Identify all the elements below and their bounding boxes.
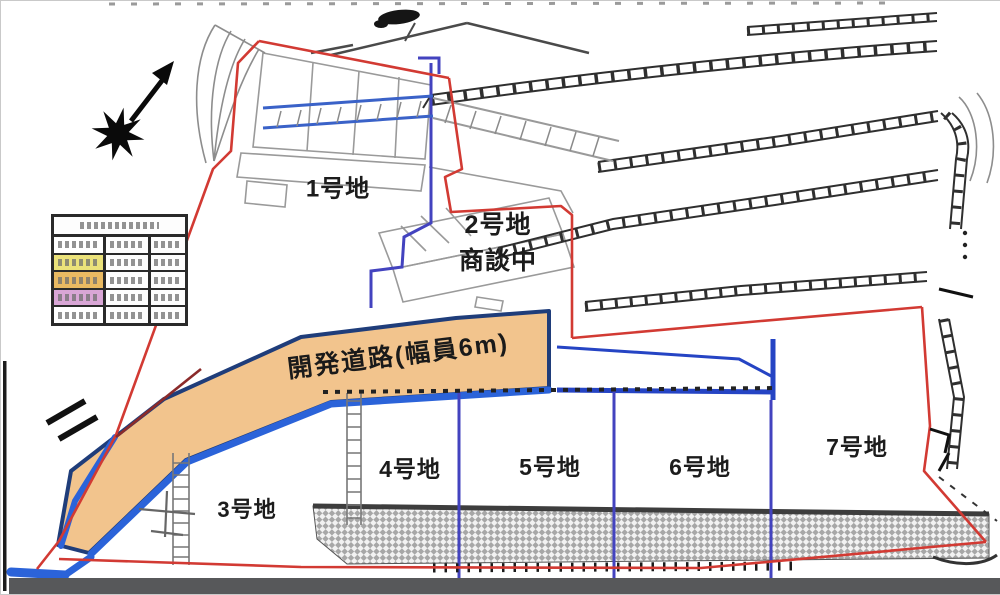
legend-cell bbox=[54, 272, 106, 288]
lot-2-status-label: 商談中 bbox=[459, 241, 537, 277]
legend-cell bbox=[151, 307, 185, 323]
lot-label-4: 4号地 bbox=[379, 450, 441, 484]
legend-cell bbox=[151, 272, 185, 288]
lot-label-1: 1号地 bbox=[306, 169, 370, 204]
lot-map: 1号地 2号地 商談中 3号地 4号地 5号地 6号地 7号地 開発道路(幅員6… bbox=[0, 0, 1000, 595]
dotted-mark bbox=[963, 243, 967, 247]
legend-cell bbox=[54, 255, 106, 271]
legend-row bbox=[54, 237, 185, 255]
legend-cell bbox=[54, 237, 106, 253]
offsite-road-sketch bbox=[311, 23, 589, 55]
bottom-bar bbox=[9, 578, 1000, 594]
dotted-mark bbox=[963, 255, 967, 259]
legend-cell bbox=[151, 237, 185, 253]
lot-label-5: 5号地 bbox=[519, 448, 581, 482]
left-frame-line bbox=[3, 361, 7, 591]
legend-cell bbox=[151, 290, 185, 306]
legend-row bbox=[54, 272, 185, 290]
top-cropped-text bbox=[109, 3, 901, 4]
dotted-mark bbox=[963, 231, 967, 235]
contour-curls bbox=[959, 93, 993, 183]
lot-label-2: 2号地 bbox=[465, 205, 532, 241]
legend-cell bbox=[54, 290, 106, 306]
legend-table bbox=[51, 214, 188, 326]
lot-label-6: 6号地 bbox=[669, 448, 731, 482]
legend-cell bbox=[151, 255, 185, 271]
north-arrow-icon bbox=[92, 61, 174, 160]
legend-row bbox=[54, 290, 185, 308]
legend-cell bbox=[106, 290, 151, 306]
legend-cell bbox=[106, 237, 151, 253]
legend-cell bbox=[54, 307, 106, 323]
legend-header-row bbox=[54, 217, 185, 237]
crosshatch-strip bbox=[313, 506, 989, 564]
legend-row bbox=[54, 255, 185, 273]
legend-cell bbox=[106, 255, 151, 271]
lot-label-7: 7号地 bbox=[826, 428, 888, 462]
legend-cell bbox=[106, 307, 151, 323]
legend-row bbox=[54, 307, 185, 323]
lot-label-3: 3号地 bbox=[217, 492, 276, 524]
legend-cell bbox=[106, 272, 151, 288]
